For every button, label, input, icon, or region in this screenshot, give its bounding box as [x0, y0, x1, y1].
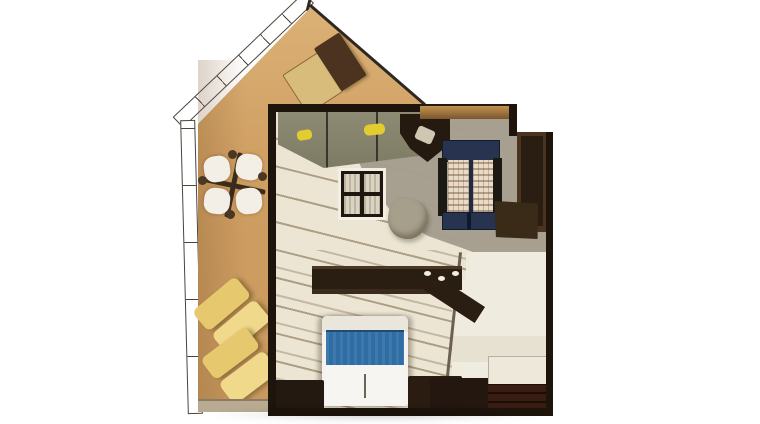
- wall-right: [546, 126, 553, 416]
- bed-seam-line: [364, 374, 366, 398]
- patio-chair: [235, 187, 264, 216]
- daybed-mattress: [448, 160, 469, 212]
- daybed: [438, 138, 502, 230]
- glass-table-panes: [344, 174, 380, 214]
- bed: [322, 316, 408, 406]
- floorplan-scene: [0, 0, 760, 424]
- corner-cabinet-shelf: [488, 356, 554, 386]
- ground-shadow: [205, 407, 550, 422]
- daybed-footboard: [442, 212, 500, 230]
- daybed-mattress: [473, 160, 493, 212]
- wall-left: [268, 104, 276, 416]
- daybed-headboard: [442, 140, 500, 162]
- dish: [438, 276, 445, 281]
- patio-table-set: [198, 150, 270, 222]
- glass-top-table: [338, 168, 386, 220]
- wall-step-horizontal: [509, 126, 553, 132]
- dish: [452, 271, 459, 276]
- desk-shelf: [312, 289, 430, 294]
- roof-fascia-bronze: [420, 104, 512, 119]
- dish: [424, 271, 431, 276]
- patio-chair-back: [226, 210, 235, 219]
- dresser-decor-item: [466, 362, 481, 375]
- patio-chair-back: [258, 172, 267, 181]
- corner-cabinet: [488, 384, 552, 410]
- daybed-rail: [438, 158, 447, 216]
- patio-chair-back: [198, 176, 207, 185]
- patio-chair-back: [228, 150, 237, 159]
- bed-blanket: [326, 330, 404, 367]
